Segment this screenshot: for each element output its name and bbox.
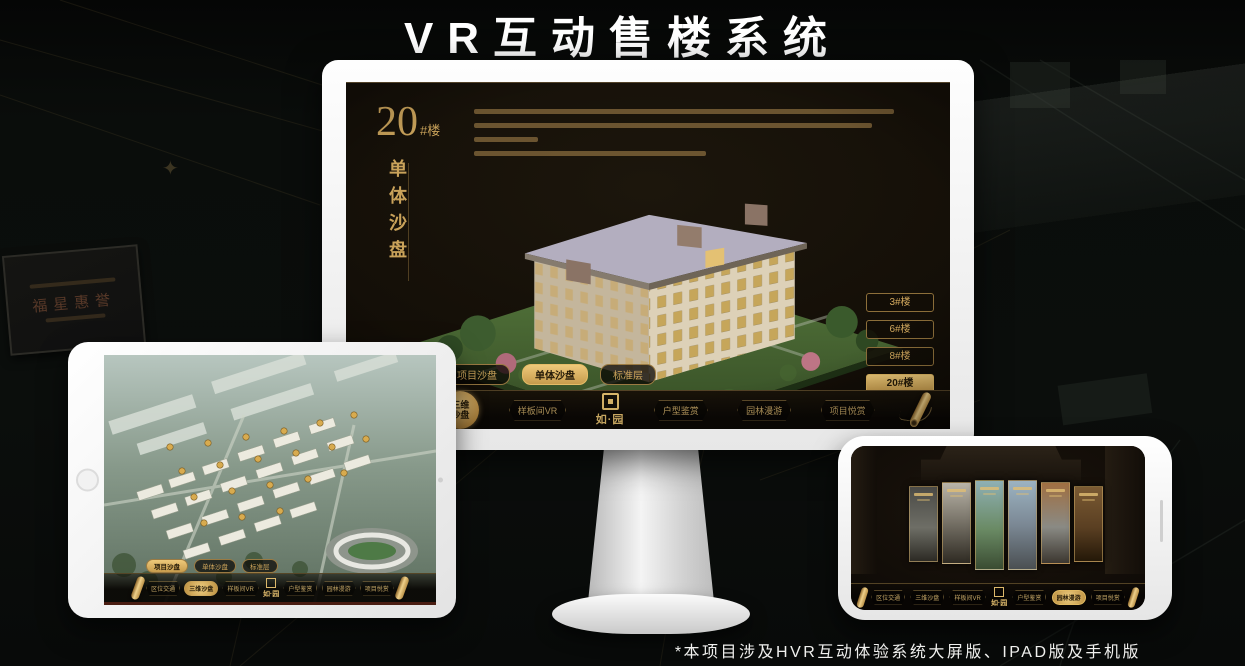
text-skeleton-line	[474, 123, 872, 128]
scroll-cap	[910, 419, 918, 427]
ipad-nav-item-3d-sandtable-active[interactable]: 三维沙盘	[184, 581, 218, 596]
phone-nav-item-unit-appreciation[interactable]: 户型鉴赏	[1012, 590, 1046, 605]
tab-standard-floor[interactable]: 标准层	[600, 364, 656, 385]
courtyard-gate-silhouette	[921, 446, 1081, 480]
phone-nav-item-showroom-vr[interactable]: 样板间VR	[949, 590, 985, 605]
ipad-nav-item-garden-roam[interactable]: 园林漫游	[322, 581, 356, 596]
footnote-text: *本项目涉及HVR互动体验系统大屏版、IPAD版及手机版	[675, 638, 1141, 662]
view-tabs: 项目沙盘 单体沙盘 标准层	[444, 364, 656, 385]
phone-nav-item-3d-sandtable[interactable]: 三维沙盘	[910, 590, 944, 605]
ipad-nav-item-unit-appreciation[interactable]: 户型鉴赏	[283, 581, 317, 596]
scene-panel-kitchen[interactable]	[942, 482, 971, 564]
phone-brand-logo-text: 如·园	[991, 598, 1007, 608]
tab-single-sandtable[interactable]: 单体沙盘	[522, 364, 588, 385]
brand-logo-text: 如·园	[596, 411, 625, 427]
building-button-6[interactable]: 6#楼	[866, 320, 934, 339]
ipad-screen: 项目沙盘 单体沙盘 标准层 区位交通 三维沙盘 样板间VR 如·园 户型鉴赏 园…	[104, 355, 436, 605]
seal-icon	[602, 393, 619, 410]
plaque-text-skeleton	[29, 277, 115, 288]
phone-brand-logo: 如·园	[991, 587, 1007, 608]
phone-navbar: 区位交通 三维沙盘 样板间VR 如·园 户型鉴赏 园林漫游 项目悦赏	[851, 583, 1145, 610]
nav-item-project-view[interactable]: 项目悦赏	[821, 400, 875, 421]
building-button-8[interactable]: 8#楼	[866, 347, 934, 366]
block-number: 20	[376, 99, 418, 145]
nav-item-unit-appreciation[interactable]: 户型鉴赏	[654, 400, 708, 421]
ipad-camera	[438, 478, 443, 483]
block-headline: 20#楼	[376, 101, 440, 143]
ipad-brand-logo: 如·园	[263, 578, 279, 599]
ipad-navbar: 区位交通 三维沙盘 样板间VR 如·园 户型鉴赏 园林漫游 项目悦赏	[104, 573, 436, 602]
nav-item-showroom-vr[interactable]: 样板间VR	[509, 400, 567, 421]
ipad-nav-item-location-traffic[interactable]: 区位交通	[146, 581, 180, 596]
ipad-tab-project-sandtable[interactable]: 项目沙盘	[146, 559, 188, 573]
block-unit: #楼	[420, 123, 440, 138]
scene-panel-building[interactable]	[1008, 480, 1037, 570]
ipad-view-tabs: 项目沙盘 单体沙盘 标准层	[146, 559, 278, 573]
brand-logo: 如·园	[596, 393, 625, 427]
scene-panel-carousel	[909, 480, 1103, 570]
plaque-brand-text: 福星惠誉	[31, 288, 117, 316]
monitor-stand-neck	[588, 444, 714, 602]
ipad-tab-standard-floor[interactable]: 标准层	[242, 559, 278, 573]
building-selector: 3#楼 6#楼 8#楼 20#楼	[866, 293, 934, 393]
scene-column-left	[851, 446, 877, 574]
phone-side-button[interactable]	[1160, 500, 1163, 542]
ipad-home-button[interactable]	[76, 469, 99, 492]
phone-scroll-icon-right[interactable]	[1127, 586, 1140, 608]
phone-screen: 区位交通 三维沙盘 样板间VR 如·园 户型鉴赏 园林漫游 项目悦赏	[851, 446, 1145, 610]
phone-nav-item-location-traffic[interactable]: 区位交通	[871, 590, 905, 605]
scroll-menu-icon[interactable]	[904, 391, 938, 429]
scene-panel-interior[interactable]	[909, 486, 938, 562]
nav-item-garden-roam[interactable]: 园林漫游	[737, 400, 791, 421]
ipad-tab-single-sandtable[interactable]: 单体沙盘	[194, 559, 236, 573]
compass-star-icon: ✦	[162, 156, 179, 181]
building-button-3[interactable]: 3#楼	[866, 293, 934, 312]
ipad-device: 项目沙盘 单体沙盘 标准层 区位交通 三维沙盘 样板间VR 如·园 户型鉴赏 园…	[68, 342, 456, 618]
ipad-scroll-icon-right[interactable]	[394, 575, 410, 600]
page-title: VR互动售楼系统	[0, 2, 1245, 66]
poster-canvas: 福星惠誉 ✦ VR互动售楼系统 20#楼 单体沙盘	[0, 0, 1245, 666]
scene-panel-autumn-court[interactable]	[1041, 482, 1070, 564]
seal-icon	[266, 578, 276, 588]
ipad-brand-logo-text: 如·园	[263, 589, 279, 599]
text-skeleton-line	[474, 109, 894, 114]
scene-panel-study[interactable]	[1074, 486, 1103, 562]
ipad-nav-item-project-view[interactable]: 项目悦赏	[360, 581, 394, 596]
seal-icon	[994, 587, 1004, 597]
scene-panel-garden[interactable]	[975, 480, 1004, 570]
ipad-bottom-strip	[104, 602, 436, 605]
phone-nav-item-project-view[interactable]: 项目悦赏	[1091, 590, 1125, 605]
phone-scroll-icon-left[interactable]	[856, 586, 869, 608]
scene-column-right	[1105, 446, 1145, 574]
ipad-scroll-icon-left[interactable]	[130, 575, 146, 600]
background-award-plaque: 福星惠誉	[2, 244, 146, 355]
monitor-stand-base	[552, 594, 750, 634]
phone-device: 区位交通 三维沙盘 样板间VR 如·园 户型鉴赏 园林漫游 项目悦赏	[838, 436, 1172, 620]
text-skeleton-line	[474, 137, 538, 142]
phone-nav-item-garden-roam-active[interactable]: 园林漫游	[1052, 590, 1086, 605]
ipad-nav-item-showroom-vr[interactable]: 样板间VR	[222, 581, 258, 596]
